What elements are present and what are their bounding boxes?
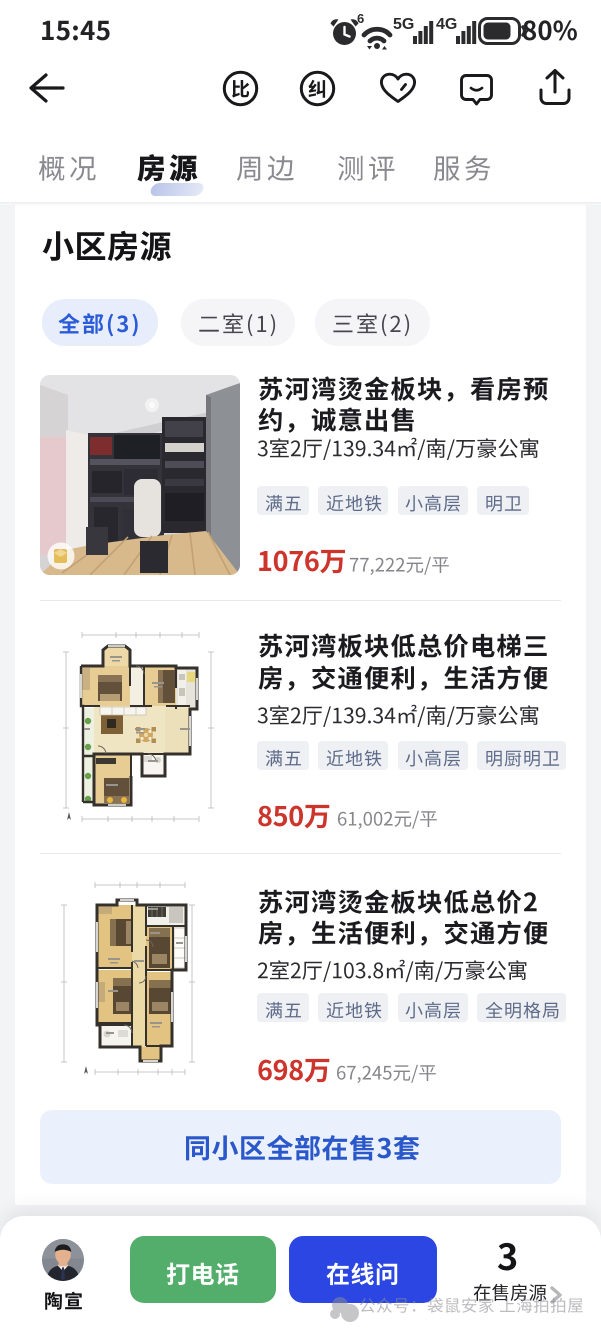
svg-text:6: 6 bbox=[357, 11, 364, 26]
svg-text:4G: 4G bbox=[436, 16, 457, 33]
svg-text:5G: 5G bbox=[393, 16, 414, 33]
